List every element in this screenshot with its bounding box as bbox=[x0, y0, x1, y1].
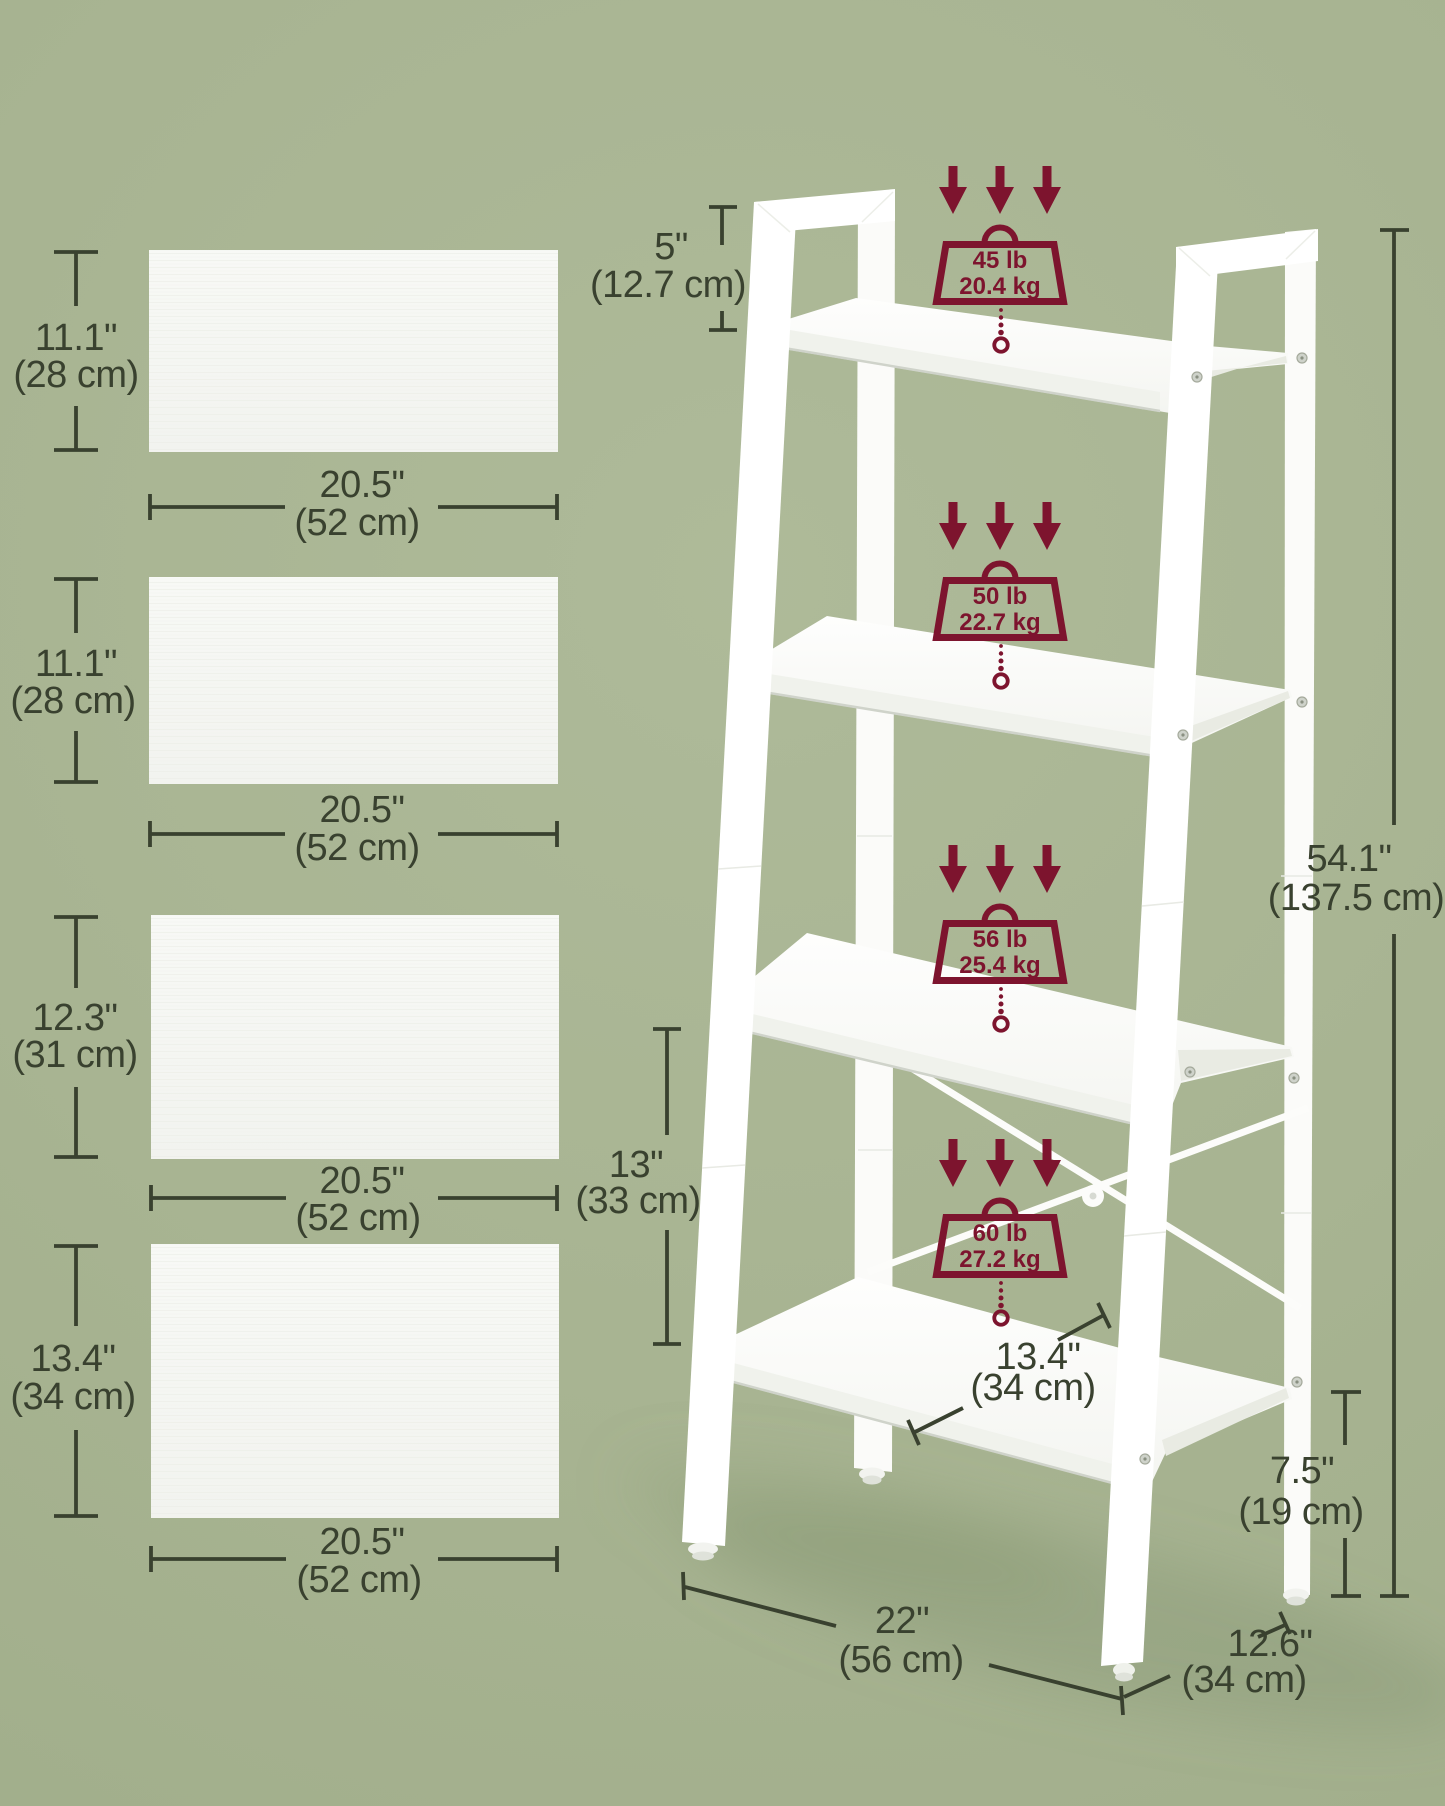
svg-text:20.5": 20.5" bbox=[320, 789, 405, 831]
svg-text:25.4 kg: 25.4 kg bbox=[959, 952, 1040, 979]
svg-text:5": 5" bbox=[654, 226, 688, 268]
svg-text:20.4 kg: 20.4 kg bbox=[959, 273, 1040, 300]
svg-text:22": 22" bbox=[875, 1600, 929, 1642]
svg-text:54.1": 54.1" bbox=[1307, 838, 1392, 880]
svg-text:(34 cm): (34 cm) bbox=[1181, 1659, 1306, 1701]
svg-text:20.5": 20.5" bbox=[320, 1521, 405, 1563]
svg-text:45 lb: 45 lb bbox=[973, 247, 1028, 274]
svg-text:13.4": 13.4" bbox=[31, 1338, 116, 1380]
svg-text:(28 cm): (28 cm) bbox=[13, 354, 138, 396]
svg-text:27.2 kg: 27.2 kg bbox=[959, 1246, 1040, 1273]
svg-text:(28 cm): (28 cm) bbox=[10, 680, 135, 722]
svg-text:(34 cm): (34 cm) bbox=[970, 1367, 1095, 1409]
svg-text:(52 cm): (52 cm) bbox=[295, 1197, 420, 1239]
svg-text:(52 cm): (52 cm) bbox=[294, 502, 419, 544]
svg-text:(137.5 cm): (137.5 cm) bbox=[1268, 877, 1445, 919]
svg-text:56 lb: 56 lb bbox=[973, 926, 1028, 953]
svg-text:22.7 kg: 22.7 kg bbox=[959, 609, 1040, 636]
svg-text:(52 cm): (52 cm) bbox=[294, 827, 419, 869]
svg-text:(56 cm): (56 cm) bbox=[838, 1639, 963, 1681]
svg-text:11.1": 11.1" bbox=[35, 317, 117, 359]
svg-text:(52 cm): (52 cm) bbox=[296, 1559, 421, 1601]
svg-text:60 lb: 60 lb bbox=[973, 1220, 1028, 1247]
svg-text:12.3": 12.3" bbox=[33, 997, 118, 1039]
svg-text:11.1": 11.1" bbox=[35, 643, 117, 685]
svg-text:(31 cm): (31 cm) bbox=[12, 1034, 137, 1076]
svg-text:7.5": 7.5" bbox=[1270, 1450, 1334, 1492]
svg-text:20.5": 20.5" bbox=[320, 464, 405, 506]
svg-text:(34 cm): (34 cm) bbox=[10, 1376, 135, 1418]
svg-text:20.5": 20.5" bbox=[320, 1160, 405, 1202]
svg-text:50 lb: 50 lb bbox=[973, 583, 1028, 610]
svg-text:(33 cm): (33 cm) bbox=[575, 1180, 700, 1222]
svg-text:(19 cm): (19 cm) bbox=[1238, 1491, 1363, 1533]
svg-text:(12.7 cm): (12.7 cm) bbox=[590, 264, 746, 306]
